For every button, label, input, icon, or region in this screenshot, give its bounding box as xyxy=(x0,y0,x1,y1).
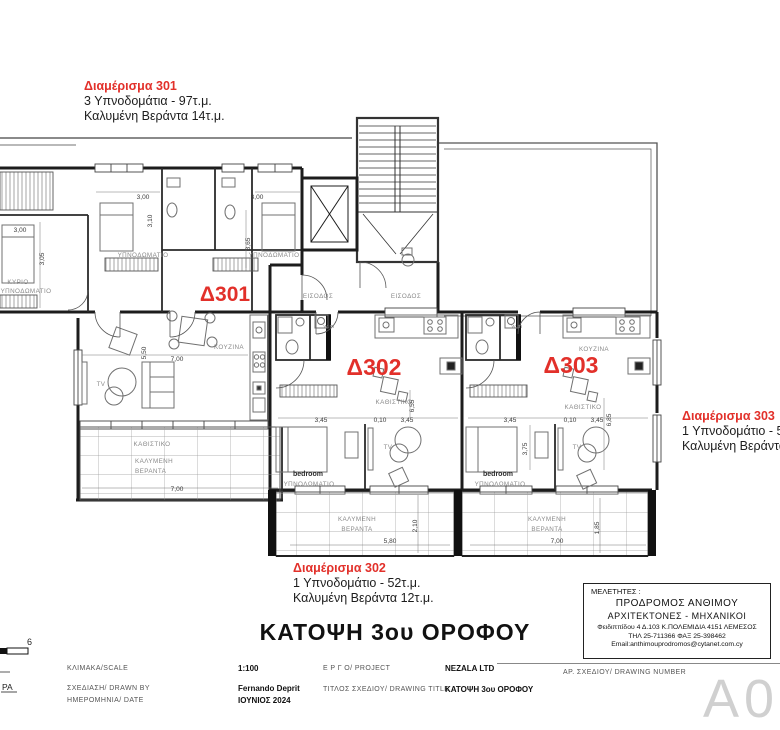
veranda-label-301a: ΚΑΛΥΜΕΝΗ xyxy=(135,458,173,465)
veranda-label-303a: ΚΑΛΥΜΕΝΗ xyxy=(528,516,566,523)
dim-303-a: 3,45 xyxy=(504,417,517,424)
titleblock-name: ΠΡΟΔΡΟΜΟΣ ΑΝΘΙΜΟΥ xyxy=(584,598,770,609)
room-label-living-303: ΚΑΘΙΣΤΙΚΟ xyxy=(565,404,602,411)
bedroom-en-label-302: bedroom xyxy=(293,471,323,478)
veranda-label-302a: ΚΑΛΥΜΕΝΗ xyxy=(338,516,376,523)
drawing-number-label: ΑΡ. ΣΧΕΔΙΟΥ/ DRAWING NUMBER xyxy=(563,669,686,676)
dim-301-i: 7,00 xyxy=(171,486,184,493)
room-label-living-301: ΚΑΘΙΣΤΙΚΟ xyxy=(134,441,171,448)
dim-302-d: 6,55 xyxy=(409,399,416,412)
dim-302-c: 3,45 xyxy=(401,417,414,424)
veranda-label-301b: ΒΕΡΑΝΤΑ xyxy=(135,468,167,475)
dim-301-f: 3,65 xyxy=(245,237,252,250)
dim-303-c: 3,45 xyxy=(591,417,604,424)
bedroom-en-label-303: bedroom xyxy=(483,471,513,478)
apt301-title: Διαμέρισμα 301 xyxy=(84,79,225,94)
unit-label-301: Δ301 xyxy=(200,283,250,306)
architect-title-block: ΜΕΛΕΤΗΤΕΣ : ΠΡΟΔΡΟΜΟΣ ΑΝΘΙΜΟΥ ΑΡΧΙΤΕΚΤΟΝ… xyxy=(583,583,771,659)
drawn-by-label: ΣΧΕΔΙΑΣΗ/ DRAWN BY xyxy=(67,685,150,692)
annotation-apt302: Διαμέρισμα 302 1 Υπνοδομάτιο - 52τ.μ. Κα… xyxy=(293,561,434,606)
unit-label-302: Δ302 xyxy=(347,354,402,380)
titleblock-profession: ΑΡΧΙΤΕΚΤΟΝΕΣ - ΜΗΧΑΝΙΚΟΙ xyxy=(584,611,770,621)
dim-301-h: 7,00 xyxy=(171,356,184,363)
dim-302-a: 3,45 xyxy=(315,417,328,424)
dim-303-g: 1,85 xyxy=(594,521,601,534)
apt302-line1: 1 Υπνοδομάτιο - 52τ.μ. xyxy=(293,576,434,591)
bedroom-gr-label-303: ΥΠΝΟΔΩΜΑΤΙΟ xyxy=(475,481,526,488)
room-label-entrance-1: ΕΙΣΟΔΟΣ xyxy=(303,293,333,300)
titleblock-phone: ΤΗΛ 25-711366 ΦΑΞ 25-398462 xyxy=(584,633,770,640)
dim-303-f: 7,00 xyxy=(551,538,564,545)
scale-bar-area: 6 ΡΑ xyxy=(0,600,120,723)
bedroom-gr-label-302: ΥΠΝΟΔΩΜΑΤΙΟ xyxy=(284,481,335,488)
room-label-kitchen-301: ΚΟΥΖΙΝΑ xyxy=(214,344,244,351)
dim-303-d: 3,75 xyxy=(522,442,529,455)
veranda-label-303b: ΒΕΡΑΝΤΑ xyxy=(531,526,563,533)
room-label-main-bedroom-2: ΥΠΝΟΔΩΜΑΤΙΟ xyxy=(1,288,52,295)
stairs xyxy=(357,118,438,262)
scale-bar-number: 6 xyxy=(27,637,32,647)
apt303-line1: 1 Υπνοδομάτιο - 54τ.μ. xyxy=(682,424,780,439)
project-label: Ε Ρ Γ Ο/ PROJECT xyxy=(323,665,390,672)
wm-label-302: w.m xyxy=(323,324,335,330)
apt302-line2: Καλυμένη Βεράντα 12τ.μ. xyxy=(293,591,434,606)
unit-label-303: Δ303 xyxy=(544,352,599,378)
room-label-main-bedroom-1: ΚΥΡΙΟ xyxy=(7,279,28,286)
dim-302-e: 5,80 xyxy=(384,538,397,545)
scale-value: 1:100 xyxy=(238,664,258,673)
wm-label-303: w.m xyxy=(511,324,523,330)
scale-label: ΚΛΙΜΑΚΑ/SCALE xyxy=(67,665,128,672)
dim-301-b: 3,05 xyxy=(39,252,46,265)
apt301-line2: Καλυμένη Βεράντα 14τ.μ. xyxy=(84,109,225,124)
dim-303-e: 6,85 xyxy=(606,413,613,426)
room-label-living-302: ΚΑΘΙΣΤΙΚΟ xyxy=(376,399,413,406)
apt301-line1: 3 Υπνοδομάτια - 97τ.μ. xyxy=(84,94,225,109)
tv-label-303: TV xyxy=(573,444,582,451)
roof-canopy-lines xyxy=(0,138,352,145)
titleblock-email: Email:anthimouprodromos@cytanet.com.cy xyxy=(584,641,770,648)
scale-bar: 6 ΡΑ xyxy=(0,637,32,692)
drawing-title-label: ΤΙΤΛΟΣ ΣΧΕΔΙΟΥ/ DRAWING TITLE xyxy=(323,686,449,693)
dim-302-f: 2,10 xyxy=(412,519,419,532)
titleblock-address: Φειδιππίδου 4 Δ.103 Κ.ΠΟΛΕΜΙΔΙΑ 4151 ΛΕΜ… xyxy=(584,624,770,631)
drawing-title-value: ΚΑΤΟΨΗ 3ου ΟΡΟΦΟΥ xyxy=(445,685,533,694)
dim-301-a: 3,00 xyxy=(14,227,27,234)
room-label-bedroom-2: ΥΠΝΟΔΩΜΑΤΙΟ xyxy=(249,252,300,259)
titleblock-divider xyxy=(497,663,780,664)
dim-303-b: 0,10 xyxy=(564,417,577,424)
room-label-entrance-2: ΕΙΣΟΔΟΣ xyxy=(391,293,421,300)
dim-301-g: 5,50 xyxy=(141,346,148,359)
doors xyxy=(68,262,540,388)
terrace-outline xyxy=(438,143,657,318)
date-label: ΗΜΕΡΟΜΗΝΙΑ/ DATE xyxy=(67,697,144,704)
titleblock-heading: ΜΕΛΕΤΗΤΕΣ : xyxy=(584,587,770,596)
dim-302-b: 0,10 xyxy=(374,417,387,424)
annotation-apt301: Διαμέρισμα 301 3 Υπνοδομάτια - 97τ.μ. Κα… xyxy=(84,79,225,124)
room-label-bedroom-1: ΥΠΝΟΔΩΜΑΤΙΟ xyxy=(118,252,169,259)
dim-301-e: 3,00 xyxy=(251,194,264,201)
date-value: ΙΟΥΝΙΟΣ 2024 xyxy=(238,696,291,705)
drawn-by-value: Fernando Deprit xyxy=(238,684,300,693)
apt303-title: Διαμέρισμα 303 xyxy=(682,409,780,424)
dim-301-c: 3,00 xyxy=(137,194,150,201)
apt303-line2: Καλυμένη Βεράντα 14τ.μ. xyxy=(682,439,780,454)
veranda-label-302b: ΒΕΡΑΝΤΑ xyxy=(341,526,373,533)
tv-label-301: TV xyxy=(97,381,106,388)
apt302-title: Διαμέρισμα 302 xyxy=(293,561,434,576)
dim-301-d: 3,10 xyxy=(147,214,154,227)
elevator xyxy=(302,178,357,250)
tv-label-302: TV xyxy=(384,444,393,451)
page-title: ΚΑΤΟΨΗ 3ου ΟΡΟΦΟΥ xyxy=(260,619,531,646)
drawing-sheet: { "colors":{"accent_red":"#e2302a","wall… xyxy=(0,0,780,723)
drawing-number-value: A02 xyxy=(703,668,780,730)
scale-bar-partial-label: ΡΑ xyxy=(2,682,13,692)
annotation-apt303: Διαμέρισμα 303 1 Υπνοδομάτιο - 54τ.μ. Κα… xyxy=(682,409,780,454)
project-value: NEZALA LTD xyxy=(445,664,494,673)
